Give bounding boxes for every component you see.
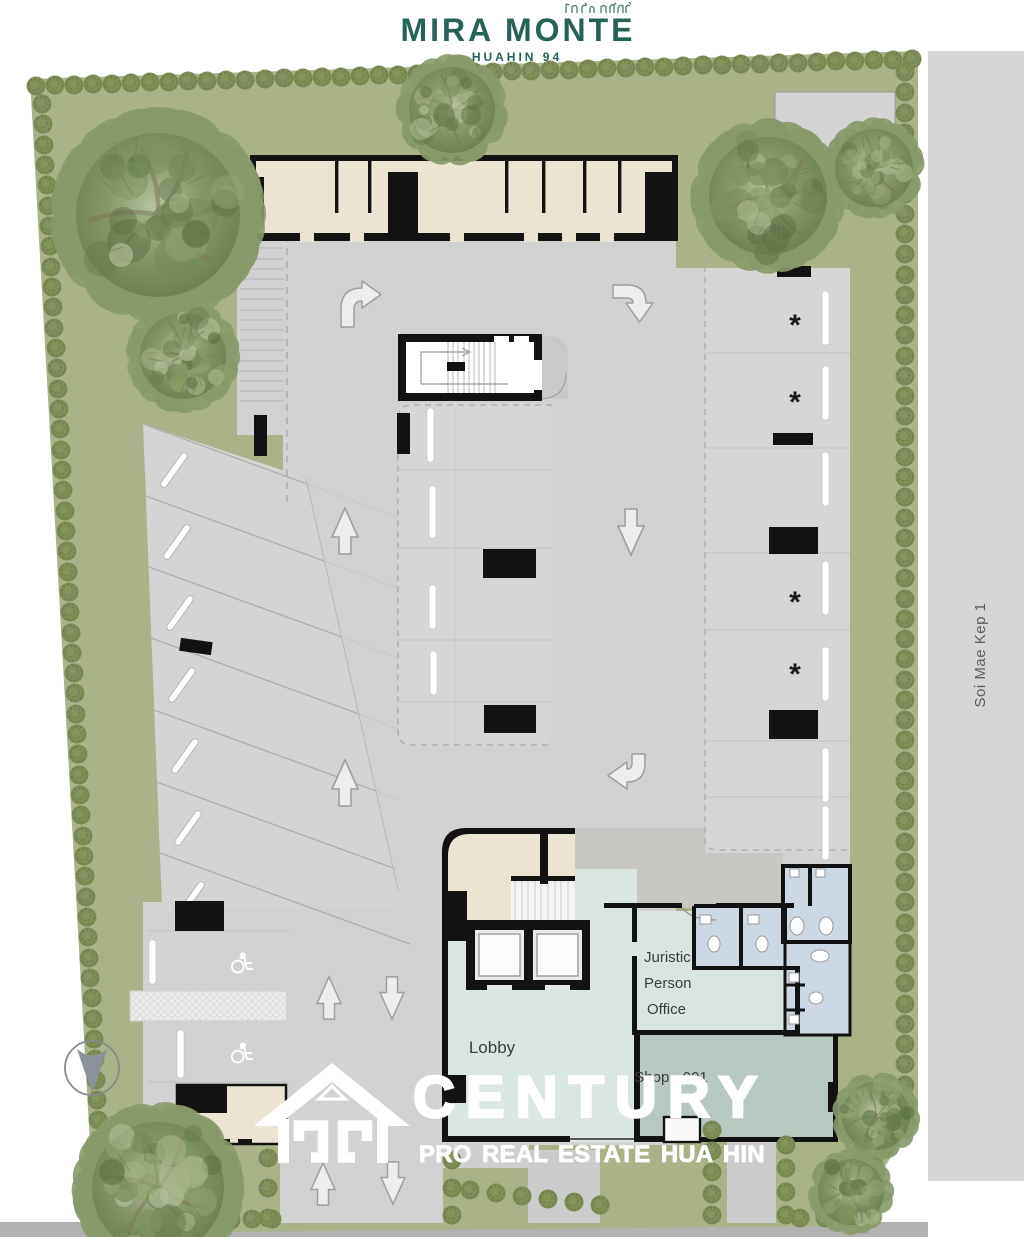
svg-text:*: * [789, 309, 801, 342]
svg-text:CENTURY: CENTURY [413, 1065, 768, 1130]
svg-text:*: * [789, 586, 801, 619]
svg-text:HUAHIN 94: HUAHIN 94 [472, 50, 562, 64]
svg-text:*: * [789, 386, 801, 419]
svg-text:PRO REAL ESTATE HUA HIN: PRO REAL ESTATE HUA HIN [419, 1141, 765, 1168]
svg-text:Lobby: Lobby [469, 1038, 516, 1057]
svg-text:Office: Office [647, 1001, 686, 1018]
svg-text:Juristic: Juristic [644, 949, 691, 966]
svg-text:*: * [789, 658, 801, 691]
svg-text:Person: Person [644, 975, 692, 992]
svg-text:Soi Mae Kep 1: Soi Mae Kep 1 [972, 603, 989, 708]
svg-text:MIRA MONTE: MIRA MONTE [400, 12, 635, 48]
